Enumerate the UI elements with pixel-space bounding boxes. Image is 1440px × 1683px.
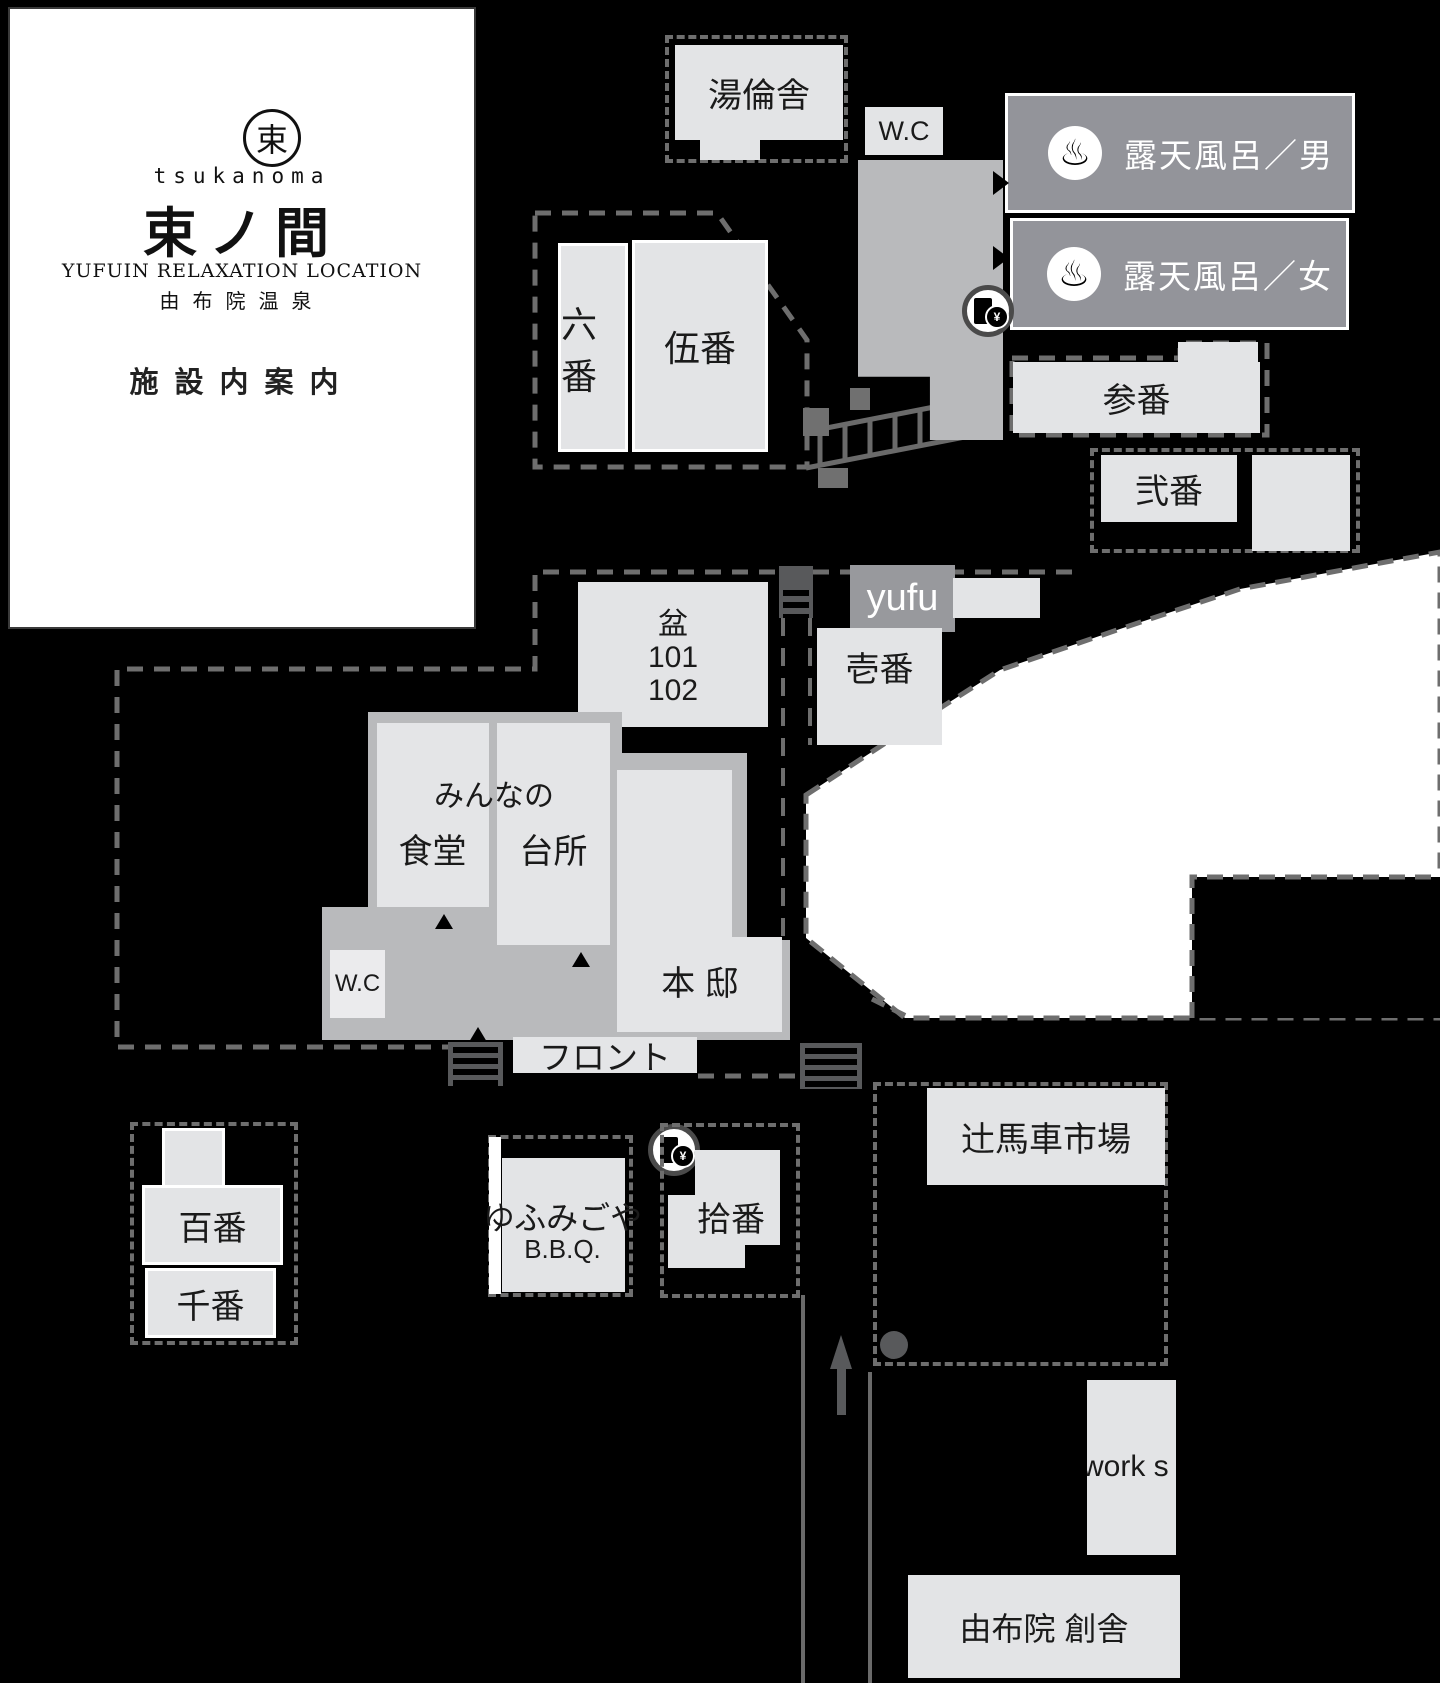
shokudo-label-wrap: 食堂 — [375, 830, 490, 866]
brand-roman: tsukanoma — [10, 164, 474, 188]
building-tsujibasha: 辻馬車市場 — [927, 1088, 1165, 1185]
juban-label: 拾番 — [697, 1192, 765, 1241]
building-ichiban-label: 壱番 — [846, 642, 914, 691]
building-niban-label: 弐番 — [1135, 464, 1203, 513]
building-yurinsha-annex — [700, 140, 760, 160]
senban-label: 千番 — [177, 1279, 245, 1328]
juban-label-wrap: 拾番 — [668, 1198, 794, 1234]
hyakuban-label: 百番 — [179, 1201, 247, 1250]
bbq-label: B.B.Q. — [524, 1234, 601, 1265]
direction-arrow-icon — [830, 1335, 852, 1369]
building-niban: 弐番 — [1101, 455, 1237, 522]
bath-label-women-text: 露天風呂／女 — [1123, 250, 1333, 298]
yufumigoya-label: ゆふみごや — [483, 1193, 642, 1239]
building-niban-annex — [1252, 455, 1350, 551]
building-yurinsha: 湯倫舎 — [675, 45, 843, 140]
brand-subtitle-jp: 由布院温泉 — [10, 285, 474, 314]
road-edge-left — [801, 1295, 805, 1683]
stairs-front-left-icon — [448, 1042, 503, 1086]
entrance-arrow-women-icon — [993, 246, 1009, 270]
building-rokuban-label: 六番 — [561, 296, 625, 400]
stairs-front-right-icon — [800, 1043, 862, 1089]
direction-arrow-shaft — [837, 1368, 846, 1415]
building-sosha: 由布院 創舎 — [908, 1575, 1180, 1678]
building-ichiban-annex — [953, 578, 1040, 618]
building-goban-label: 伍番 — [664, 320, 736, 372]
building-yufu: yufu — [850, 565, 955, 632]
building-bon-room2-label: 102 — [648, 674, 698, 707]
building-yufu-label: yufu — [867, 577, 939, 620]
daidokoro-label: 台所 — [520, 824, 588, 873]
hot-spring-icon: ♨ — [1048, 126, 1102, 180]
brand-subtitle-en: YUFUIN RELAXATION LOCATION — [10, 260, 474, 282]
tsujibasha-label: 辻馬車市場 — [961, 1112, 1131, 1161]
wc-main-label: W.C — [335, 970, 380, 998]
building-bon-label: 盆 — [658, 608, 688, 641]
minna-no-label-wrap: みんなの — [404, 776, 584, 810]
road-edge-right — [868, 1372, 872, 1683]
building-yurinsha-label: 湯倫舎 — [708, 68, 810, 117]
building-rokuban: 六番 — [558, 243, 628, 452]
logo-panel: 束 tsukanoma 束ノ間 YUFUIN RELAXATION LOCATI… — [8, 7, 476, 629]
shokudo-label: 食堂 — [399, 824, 467, 873]
map-dot-marker — [880, 1331, 908, 1359]
entrance-triangle-icon — [435, 914, 453, 929]
building-bon-room1-label: 101 — [648, 641, 698, 674]
minna-no-label: みんなの — [434, 771, 554, 815]
room-shokudo — [377, 723, 489, 907]
building-hyakuban: 百番 — [142, 1185, 283, 1265]
building-wc-top-label: W.C — [879, 116, 930, 147]
hot-spring-glyph: ♨ — [1059, 132, 1091, 174]
hot-spring-icon: ♨ — [1047, 247, 1101, 301]
entrance-triangle-icon — [572, 952, 590, 967]
building-hyakuban-annex — [162, 1128, 225, 1188]
yen-glyph: ¥ — [994, 310, 1001, 324]
building-sanban: 参番 — [1013, 362, 1260, 433]
building-bon: 盆 101 102 — [578, 582, 768, 727]
entrance-triangle-icon — [469, 1027, 487, 1042]
building-front: フロント — [513, 1037, 697, 1073]
bath-label-women: ♨ 露天風呂／女 — [1010, 218, 1349, 330]
bath-label-men: ♨ 露天風呂／男 — [1005, 93, 1355, 213]
river-notch — [1192, 877, 1440, 1018]
ticket-icon-yen: ¥ — [985, 305, 1009, 329]
brand-emblem-char: 束 — [256, 115, 288, 161]
building-senban: 千番 — [145, 1268, 276, 1338]
building-sanban-label: 参番 — [1103, 373, 1171, 422]
facility-map: 束 tsukanoma 束ノ間 YUFUIN RELAXATION LOCATI… — [0, 0, 1440, 1683]
workshop-label: work s — [1087, 1450, 1169, 1484]
building-ichiban: 壱番 — [817, 628, 942, 745]
brand-kanji: 束ノ間 — [10, 189, 474, 268]
entrance-arrow-men-icon — [993, 171, 1009, 195]
building-wc-main: W.C — [330, 950, 385, 1018]
building-goban: 伍番 — [632, 240, 768, 452]
brand-emblem: 束 — [243, 109, 301, 167]
hontei-label-wrap: 本 邸 — [635, 962, 765, 998]
building-wc-top: W.C — [865, 107, 943, 155]
yufumigoya-label-wrap: ゆふみごや — [480, 1198, 645, 1234]
bbq-label-wrap: B.B.Q. — [480, 1234, 645, 1264]
bridge-landing-top — [850, 388, 870, 410]
map-title: 施設内案内 — [10, 359, 474, 401]
hot-spring-glyph: ♨ — [1058, 253, 1090, 295]
building-workshop: work s — [1087, 1380, 1176, 1555]
ticket-machine-icon: ¥ — [962, 285, 1014, 337]
sosha-label: 由布院 創舎 — [960, 1604, 1129, 1650]
front-label: フロント — [539, 1031, 671, 1079]
bridge-landing-bottom — [818, 468, 848, 488]
bath-label-men-text: 露天風呂／男 — [1124, 129, 1334, 177]
daidokoro-label-wrap: 台所 — [495, 830, 612, 866]
hontei-label: 本 邸 — [661, 956, 738, 1005]
bridge-landing-left — [803, 408, 829, 436]
stairs-upper-icon — [779, 566, 813, 618]
